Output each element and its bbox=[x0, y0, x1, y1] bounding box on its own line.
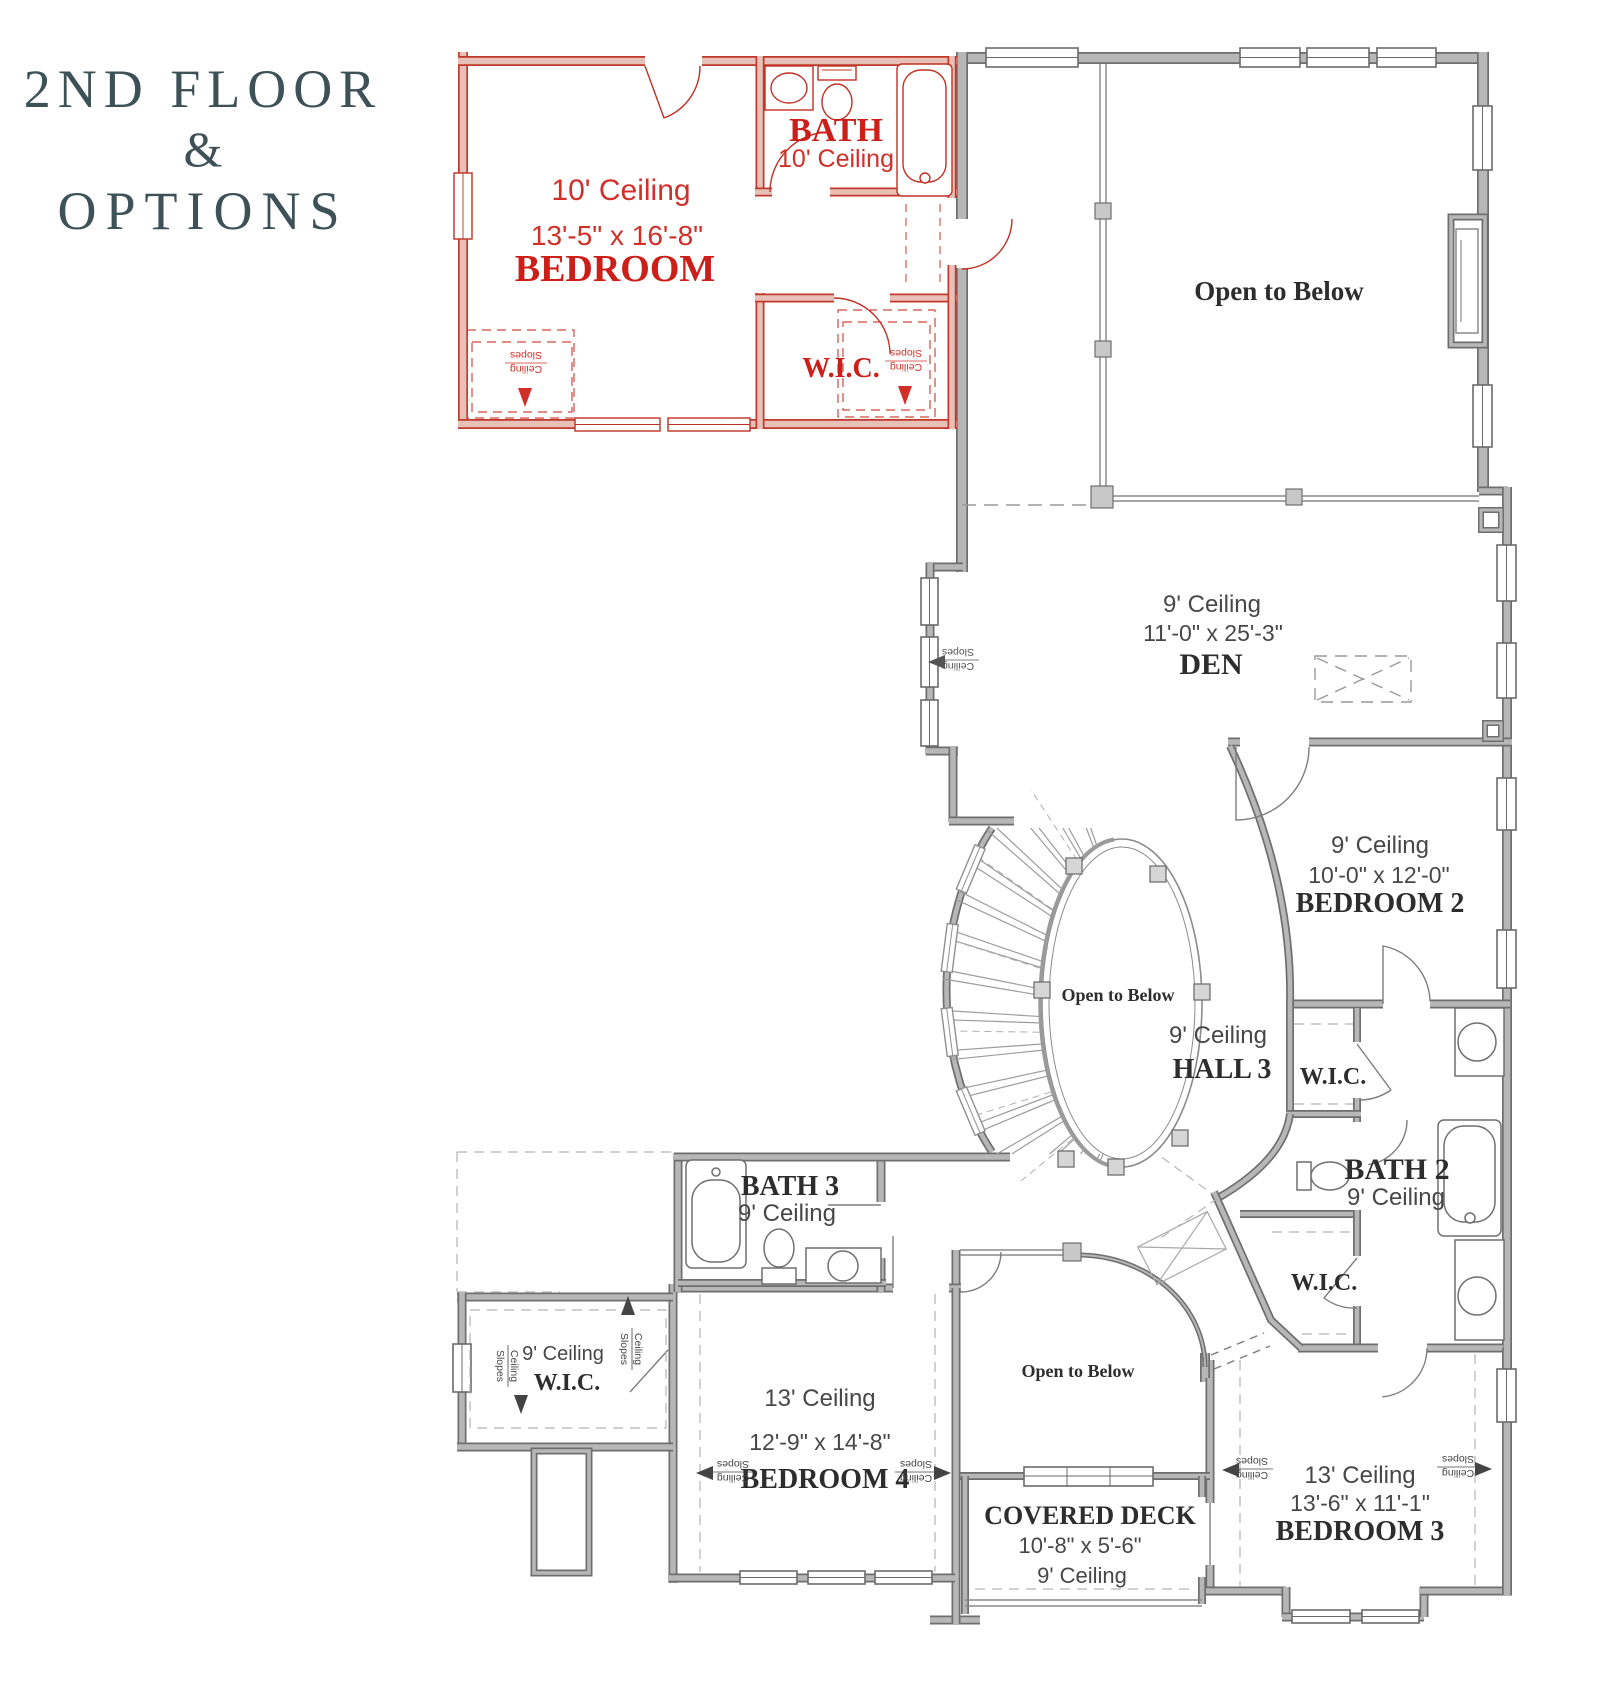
svg-text:Open to Below: Open to Below bbox=[1021, 1361, 1134, 1381]
svg-text:10'-8" x 5'-6": 10'-8" x 5'-6" bbox=[1018, 1533, 1141, 1558]
svg-text:Ceiling: Ceiling bbox=[1442, 1467, 1474, 1479]
svg-text:9' Ceiling: 9' Ceiling bbox=[1037, 1563, 1127, 1588]
svg-text:BATH: BATH bbox=[789, 112, 883, 149]
svg-text:BEDROOM 4: BEDROOM 4 bbox=[741, 1464, 910, 1495]
svg-text:COVERED DECK: COVERED DECK bbox=[984, 1501, 1196, 1530]
svg-text:13' Ceiling: 13' Ceiling bbox=[1304, 1462, 1415, 1489]
svg-text:10' Ceiling: 10' Ceiling bbox=[551, 174, 690, 207]
svg-text:DEN: DEN bbox=[1179, 648, 1243, 681]
svg-text:OPTIONS: OPTIONS bbox=[57, 181, 348, 241]
svg-text:Ceiling: Ceiling bbox=[632, 1333, 644, 1365]
svg-text:Slopes: Slopes bbox=[1442, 1453, 1474, 1465]
svg-text:Ceiling: Ceiling bbox=[508, 1350, 520, 1382]
svg-text:2ND FLOOR: 2ND FLOOR bbox=[24, 59, 383, 119]
svg-text:Ceiling: Ceiling bbox=[1236, 1469, 1268, 1481]
svg-text:W.I.C.: W.I.C. bbox=[1300, 1064, 1366, 1090]
svg-text:Slopes: Slopes bbox=[510, 349, 542, 361]
svg-text:10'-0" x 12'-0": 10'-0" x 12'-0" bbox=[1308, 862, 1449, 888]
svg-text:9' Ceiling: 9' Ceiling bbox=[1163, 591, 1261, 618]
svg-text:10' Ceiling: 10' Ceiling bbox=[778, 145, 894, 173]
svg-text:13' Ceiling: 13' Ceiling bbox=[764, 1385, 875, 1412]
svg-text:BATH 2: BATH 2 bbox=[1344, 1153, 1449, 1186]
svg-text:13'-6" x 11'-1": 13'-6" x 11'-1" bbox=[1290, 1490, 1430, 1516]
svg-text:BEDROOM 3: BEDROOM 3 bbox=[1276, 1516, 1445, 1547]
svg-text:Ceiling: Ceiling bbox=[900, 1472, 932, 1484]
svg-text:BEDROOM 2: BEDROOM 2 bbox=[1296, 888, 1465, 919]
svg-text:Ceiling: Ceiling bbox=[717, 1472, 749, 1484]
svg-text:W.I.C.: W.I.C. bbox=[802, 353, 880, 384]
svg-text:9' Ceiling: 9' Ceiling bbox=[1347, 1184, 1445, 1211]
svg-text:Open to Below: Open to Below bbox=[1061, 985, 1174, 1005]
svg-text:BATH 3: BATH 3 bbox=[741, 1171, 839, 1202]
svg-text:BEDROOM: BEDROOM bbox=[515, 248, 716, 290]
svg-text:Ceiling: Ceiling bbox=[890, 361, 922, 373]
svg-text:Slopes: Slopes bbox=[890, 347, 922, 359]
svg-text:Slopes: Slopes bbox=[717, 1458, 749, 1470]
svg-text:Ceiling: Ceiling bbox=[942, 660, 974, 672]
svg-text:13'-5" x 16'-8": 13'-5" x 16'-8" bbox=[531, 220, 703, 251]
svg-text:W.I.C.: W.I.C. bbox=[534, 1370, 600, 1396]
svg-text:9' Ceiling: 9' Ceiling bbox=[1331, 832, 1429, 859]
svg-text:W.I.C.: W.I.C. bbox=[1291, 1270, 1357, 1296]
svg-text:Slopes: Slopes bbox=[618, 1333, 630, 1365]
svg-text:Ceiling: Ceiling bbox=[510, 363, 542, 375]
svg-text:9' Ceiling: 9' Ceiling bbox=[522, 1343, 604, 1365]
svg-text:12'-9" x 14'-8": 12'-9" x 14'-8" bbox=[749, 1429, 890, 1455]
svg-text:9' Ceiling: 9' Ceiling bbox=[1169, 1022, 1267, 1049]
svg-text:9' Ceiling: 9' Ceiling bbox=[738, 1200, 836, 1227]
svg-text:11'-0" x 25'-3": 11'-0" x 25'-3" bbox=[1143, 620, 1283, 646]
svg-text:HALL 3: HALL 3 bbox=[1173, 1054, 1272, 1085]
svg-text:&: & bbox=[184, 121, 223, 177]
svg-text:Slopes: Slopes bbox=[942, 646, 974, 658]
svg-text:Open to Below: Open to Below bbox=[1194, 276, 1364, 306]
svg-text:Slopes: Slopes bbox=[494, 1350, 506, 1382]
svg-text:Slopes: Slopes bbox=[900, 1458, 932, 1470]
svg-text:Slopes: Slopes bbox=[1236, 1455, 1268, 1467]
